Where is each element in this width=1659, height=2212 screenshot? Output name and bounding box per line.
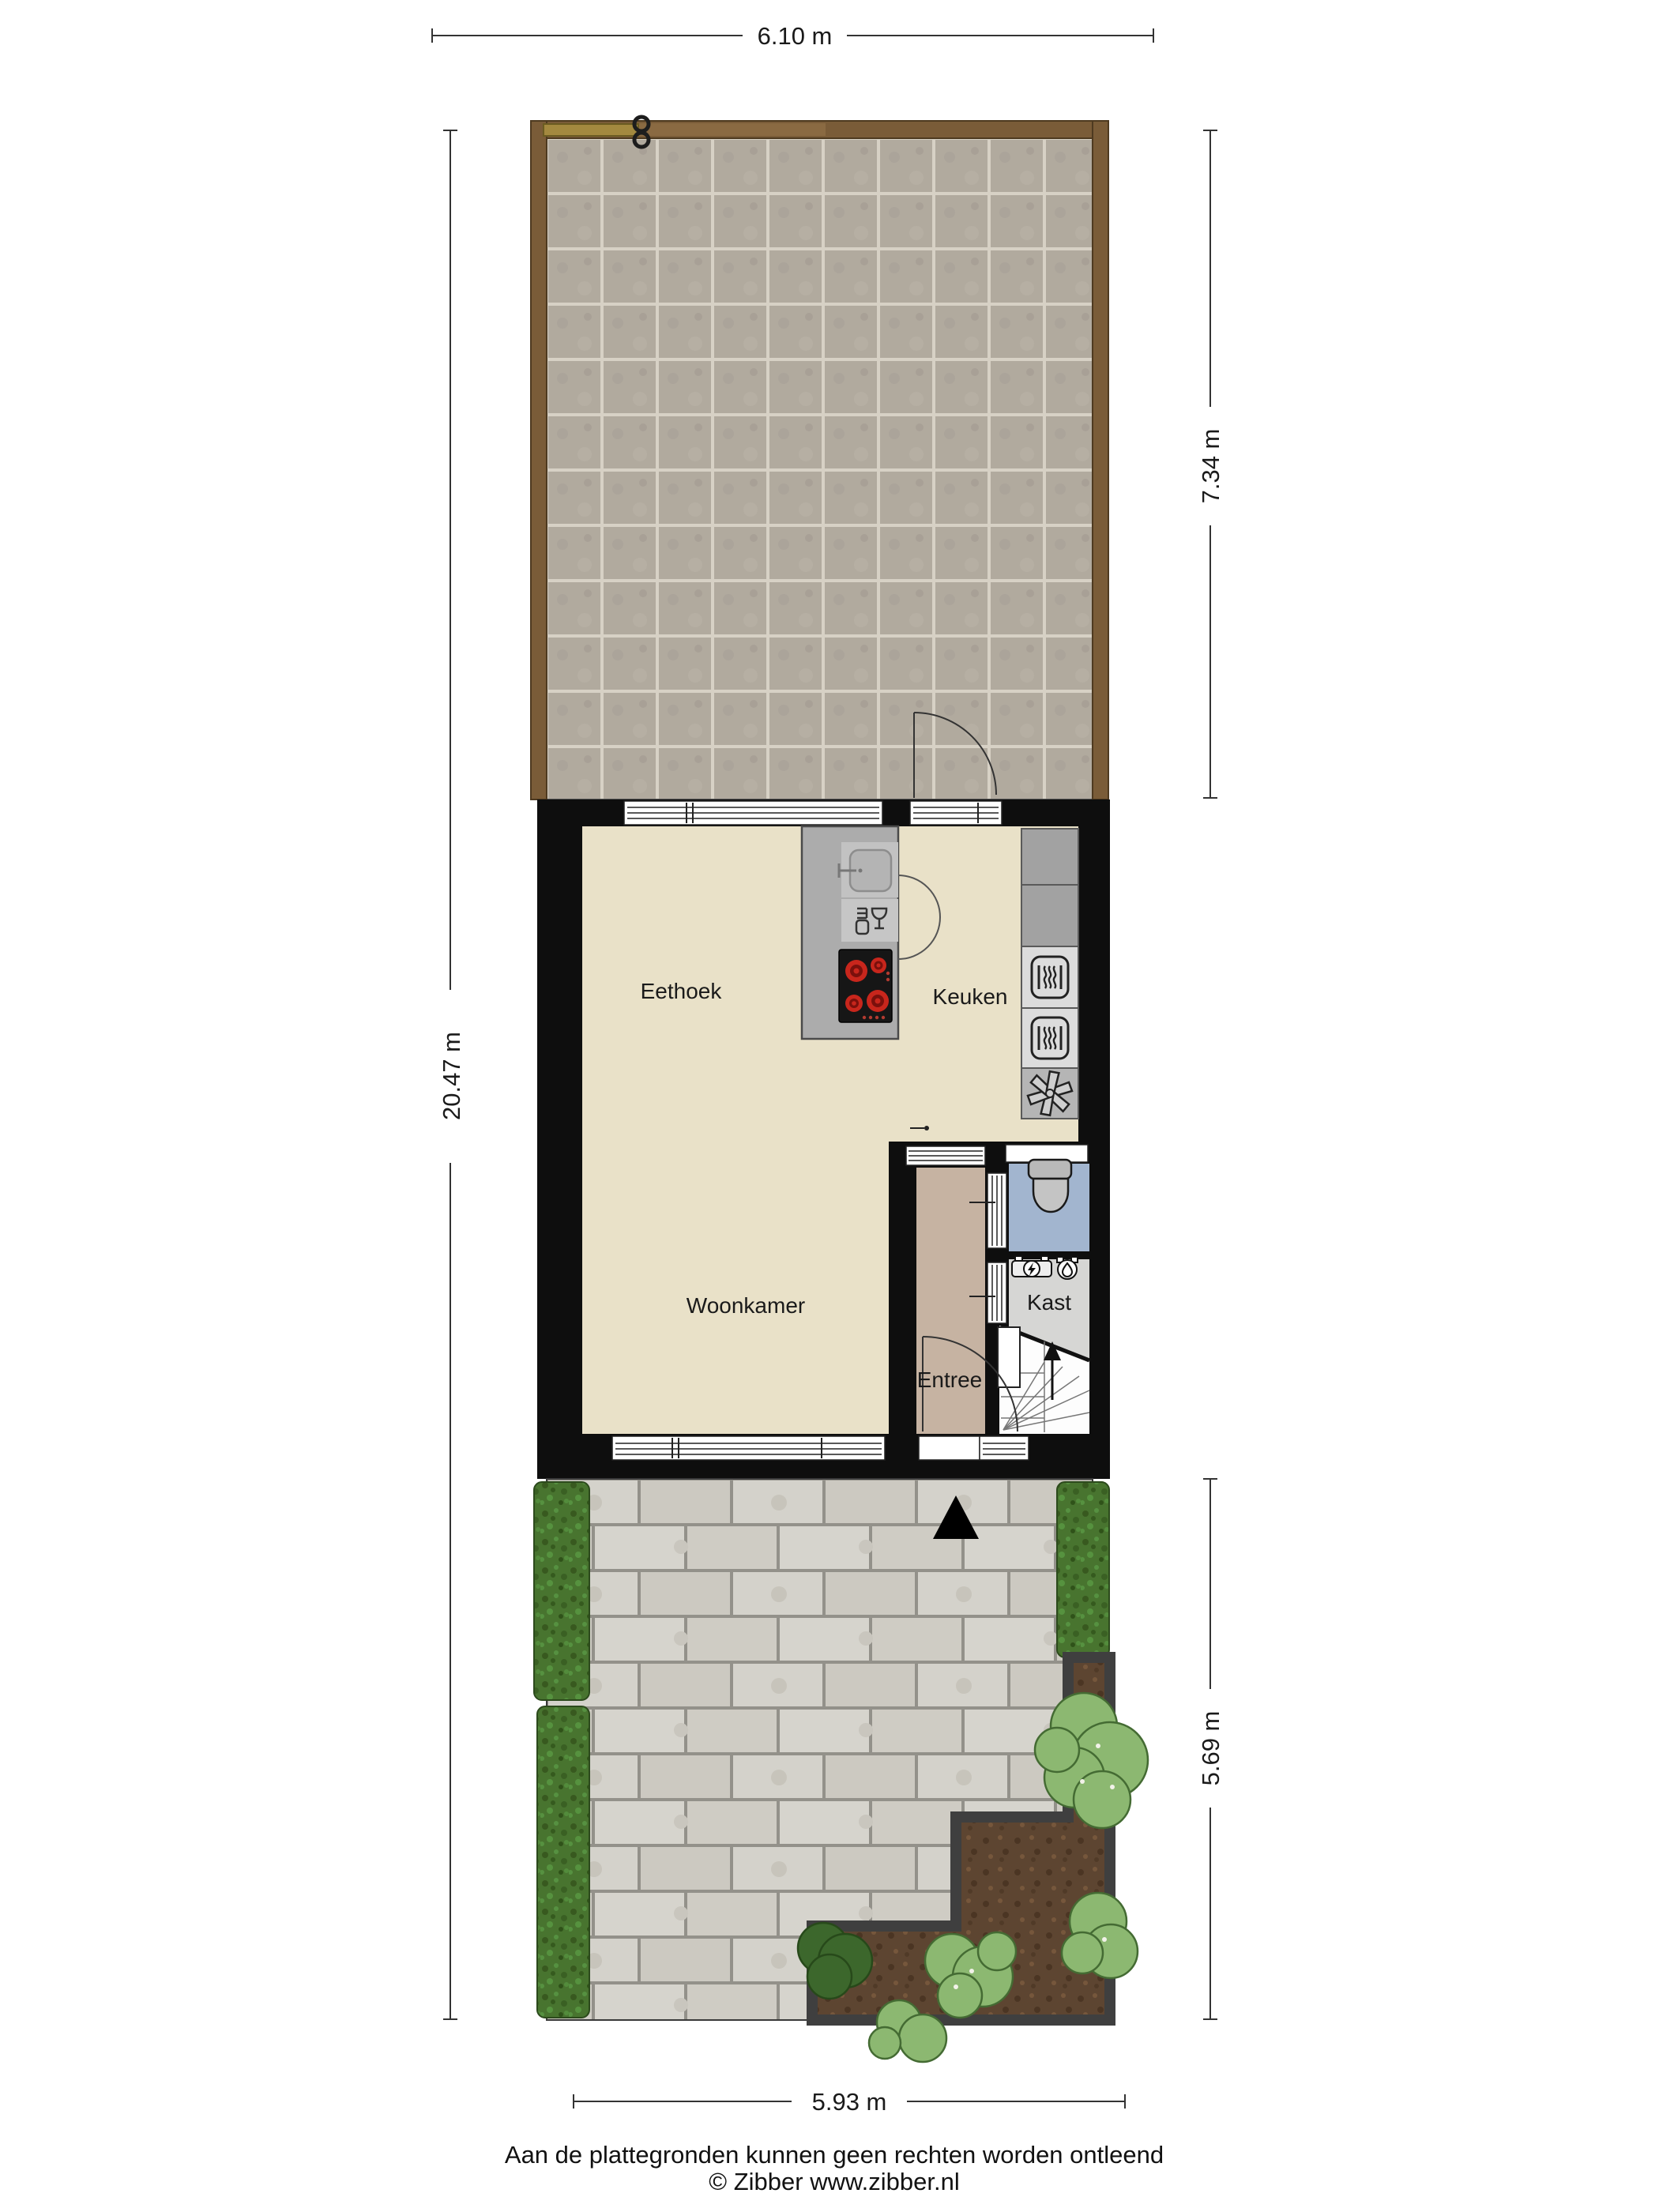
footer-disclaimer: Aan de plattegronden kunnen geen rechten… xyxy=(505,2141,1164,2169)
room-label-kast: Kast xyxy=(1027,1290,1071,1315)
dimension-right-upper-label: 7.34 m xyxy=(1197,429,1224,504)
window-back-left xyxy=(624,801,882,825)
room-label-entree: Entree xyxy=(917,1367,983,1392)
hedge-left-lower xyxy=(537,1706,589,2018)
hedge-right xyxy=(1057,1482,1109,1657)
gas-meter-icon xyxy=(1057,1257,1078,1279)
fence-gate xyxy=(544,124,638,136)
entree-side-glazing xyxy=(987,1173,1006,1323)
floorplan-canvas: 6.10 m 20.47 m 7.34 m 5.69 m 5.93 m xyxy=(0,0,1659,2212)
cooktop xyxy=(839,950,892,1022)
front-door-opening xyxy=(919,1436,980,1460)
window-front-sidelight xyxy=(980,1436,1029,1460)
dimension-top-label: 6.10 m xyxy=(758,22,833,50)
patio-tiles xyxy=(547,138,1093,799)
window-back-right xyxy=(910,801,1002,825)
front-garden xyxy=(534,1479,1148,2062)
dimension-bottom-label: 5.93 m xyxy=(812,2088,887,2116)
kitchen-counter xyxy=(1021,829,1078,1119)
house xyxy=(537,799,1110,1479)
patio xyxy=(531,117,1108,799)
room-label-eethoek: Eethoek xyxy=(641,979,723,1003)
window-front-left xyxy=(612,1436,885,1460)
room-label-woonkamer: Woonkamer xyxy=(687,1293,805,1318)
floor-entree xyxy=(916,1168,985,1434)
hedge-left-upper xyxy=(534,1482,589,1700)
dishwasher-panel xyxy=(841,899,898,942)
footer-credit: © Zibber www.zibber.nl xyxy=(709,2168,959,2195)
room-label-keuken: Keuken xyxy=(933,984,1008,1009)
entree-top-glazing xyxy=(906,1146,985,1165)
dimension-left-label: 20.47 m xyxy=(438,1032,465,1120)
dimension-right-lower-label: 5.69 m xyxy=(1197,1711,1224,1786)
